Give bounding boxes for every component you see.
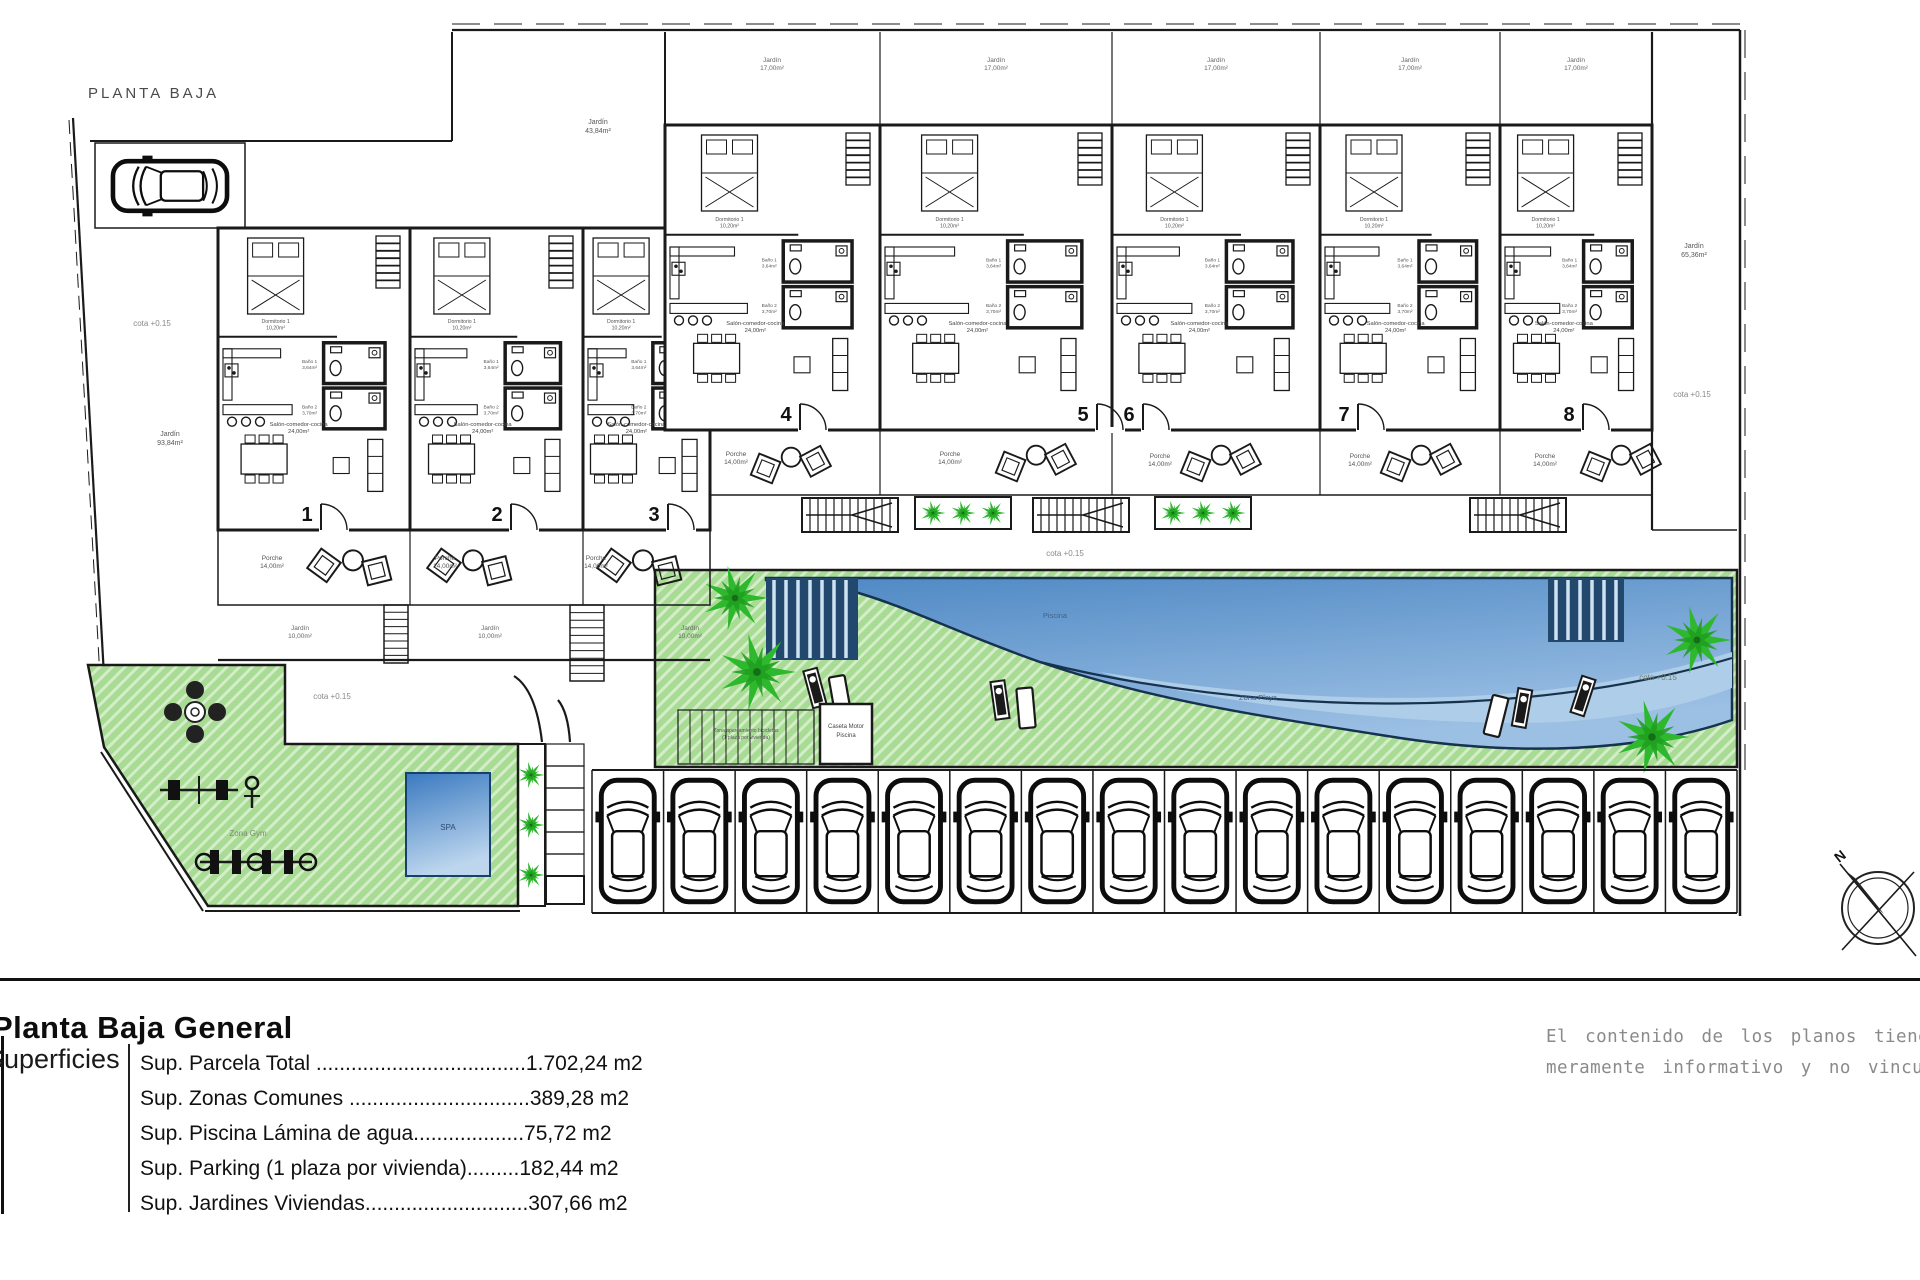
parked-car-icon — [1669, 780, 1734, 902]
plan-label: Salón-comedor-cocina — [607, 422, 666, 428]
plan-label: Zona Playa — [1239, 693, 1278, 702]
palm-glyph — [519, 812, 545, 838]
pset-glyph — [1178, 442, 1262, 484]
plan-label: Baño 1 — [986, 257, 1002, 263]
plan-label: Baño 1 — [762, 257, 778, 263]
apartment-unit: Baño 13,64m²Baño 23,70m²Dormitorio 110,2… — [880, 125, 1112, 430]
plan-label: Dormitorio 1 — [1160, 217, 1188, 223]
plan-label: 3,64m² — [484, 365, 499, 371]
plan-rect — [783, 287, 852, 328]
plan-title-label: PLANTA BAJA — [88, 85, 219, 102]
stairH-glyph — [802, 498, 898, 532]
parked-car-icon — [810, 780, 875, 902]
plan-label: 3,64m² — [762, 263, 777, 269]
plan-label: 14,00m² — [724, 459, 749, 466]
plan-label: 24,00m² — [626, 429, 647, 435]
plan-rect — [1008, 241, 1082, 282]
plan-label: 3,70m² — [986, 309, 1001, 315]
driveway-curb — [558, 700, 570, 742]
plan-label: Salón-comedor-cocina — [1170, 321, 1229, 327]
plan-label: 3,70m² — [1562, 309, 1577, 315]
unit-number: 8 — [1563, 404, 1574, 426]
plan-label: Baño 2 — [986, 303, 1002, 309]
pool-machinery-hut: Caseta MotorPiscina — [820, 704, 872, 764]
plan-label: Jardín — [1567, 57, 1585, 64]
parked-car-icon — [1597, 780, 1662, 902]
plnt-glyph — [1155, 497, 1251, 529]
plan-label: SPA — [440, 823, 456, 832]
plan-label: (1 plaza por vivienda) — [722, 735, 770, 741]
plan-rect — [1008, 287, 1082, 328]
plan-label: Porche — [940, 451, 961, 458]
plan-label: Jardín — [588, 119, 608, 126]
pset-glyph — [1378, 442, 1462, 484]
plan-label: Baño 2 — [1205, 303, 1221, 309]
parked-car-icon — [1168, 780, 1233, 902]
plan-label: 17,00m² — [760, 65, 785, 72]
parked-car-icon — [882, 780, 947, 902]
plan-label: Dormitorio 1 — [607, 319, 635, 325]
plan-label: 3,64m² — [631, 365, 646, 371]
door-opening — [1356, 427, 1386, 433]
plan-label: Salón-comedor-cocina — [726, 321, 785, 327]
titleblock-divider — [128, 1044, 130, 1212]
plan-rect — [766, 578, 858, 660]
pset-glyph — [1578, 442, 1662, 484]
unit-number: 5 — [1077, 404, 1088, 426]
porch-row — [710, 430, 1652, 495]
plan-label: 24,00m² — [1189, 328, 1210, 334]
unit-number: 7 — [1338, 404, 1349, 426]
plan-label: Jardín — [763, 57, 781, 64]
parked-car-icon — [1454, 780, 1519, 902]
plan-rect — [1226, 287, 1293, 328]
plan-label: 24,00m² — [745, 328, 766, 334]
plan-label: Zona aparcamiento bicicletas — [713, 728, 779, 734]
plan-label: 3,64m² — [1562, 263, 1577, 269]
plan-label: 10,20m² — [1364, 224, 1383, 230]
storage-cell — [546, 854, 584, 876]
storage-cell — [546, 744, 584, 766]
plan-label: 17,00m² — [1564, 65, 1589, 72]
plan-label: 93,84m² — [157, 440, 183, 447]
plan-label: Jardín — [681, 625, 699, 632]
unit-number: 6 — [1123, 404, 1134, 426]
plan-rect — [324, 343, 385, 384]
plan-label: Dormitorio 1 — [261, 319, 289, 325]
palm-glyph — [519, 862, 545, 888]
plan-label: 14,00m² — [433, 563, 458, 570]
lng-glyph — [1016, 687, 1035, 728]
surface-row: Sup. Parking (1 plaza por vivienda).....… — [140, 1151, 643, 1186]
plan-label: 24,00m² — [288, 429, 309, 435]
plan-label: Jardín — [1684, 243, 1704, 250]
plan-label: 14,00m² — [1148, 461, 1173, 468]
plan-label: Baño 2 — [1397, 303, 1413, 309]
plan-label: Jardín — [160, 431, 180, 438]
plan-label: Dormitorio 1 — [448, 319, 476, 325]
plan-label: Caseta Motor — [828, 724, 864, 730]
plan-label: 10,00m² — [288, 633, 313, 640]
plan-label: 14,00m² — [584, 563, 609, 570]
unit-number: 2 — [491, 504, 502, 526]
stairH-glyph — [1033, 498, 1129, 532]
parked-car-icon — [1526, 780, 1591, 902]
plan-label: Salón-comedor-cocina — [1367, 321, 1426, 327]
parking-row — [592, 770, 1737, 913]
plan-label: Baño 1 — [1205, 257, 1221, 263]
parked-car-icon — [1025, 780, 1090, 902]
plan-label: 24,00m² — [472, 429, 493, 435]
apartment-unit: Baño 13,64m²Baño 23,70m²Dormitorio 110,2… — [218, 228, 410, 530]
plan-rect — [783, 241, 852, 282]
plan-label: Porche — [1535, 453, 1556, 460]
plan-line — [69, 120, 104, 750]
parked-car-icon — [1240, 780, 1305, 902]
plan-label: Baño 1 — [631, 359, 647, 365]
plan-rect — [1226, 241, 1293, 282]
plan-label: Porche — [1150, 453, 1171, 460]
disclaimer-line: El contenido de los planos tiene valor — [1546, 1022, 1920, 1053]
parked-car-icon — [739, 780, 804, 902]
plan-label: 10,20m² — [266, 326, 285, 332]
driveway-curb — [514, 676, 542, 742]
surface-row: Sup. Parcela Total .....................… — [140, 1046, 643, 1081]
parked-car-icon — [113, 156, 227, 217]
plan-line — [73, 118, 108, 748]
pool-deck-steps — [766, 578, 858, 660]
pset-glyph — [748, 444, 832, 486]
plan-label: Salón-comedor-cocina — [270, 422, 329, 428]
plan-label: 24,00m² — [1553, 328, 1574, 334]
unit-number: 4 — [780, 404, 792, 426]
pset-glyph — [993, 442, 1077, 484]
plan-label: 14,00m² — [938, 459, 963, 466]
plan-label: Dormitorio 1 — [935, 217, 963, 223]
storage-cell — [546, 788, 584, 810]
plan-label: Baño 1 — [1397, 257, 1413, 263]
disclaimer-line: meramente informativo y no vinculante — [1546, 1053, 1920, 1084]
storage-cell — [546, 810, 584, 832]
plan-label: Baño 2 — [302, 404, 318, 410]
plan-label: Baño 2 — [762, 303, 778, 309]
door-opening — [509, 527, 539, 533]
legal-disclaimer: El contenido de los planos tiene valor m… — [1546, 1022, 1920, 1084]
surface-row: Sup. Jardines Viviendas.................… — [140, 1186, 643, 1221]
plan-label: Porche — [726, 451, 747, 458]
plan-label: Salón-comedor-cocina — [454, 422, 513, 428]
plan-label: cota +0.15 — [133, 319, 171, 328]
plan-label: Baño 2 — [484, 404, 500, 410]
plan-label: Jardín — [481, 625, 499, 632]
plan-label: 17,00m² — [1398, 65, 1423, 72]
apartment-unit: Baño 13,64m²Baño 23,70m²Dormitorio 110,2… — [1500, 125, 1652, 430]
parked-car-icon — [1383, 780, 1448, 902]
plan-label: Jardín — [1401, 57, 1419, 64]
stairs-icon — [384, 605, 408, 663]
door-opening — [1141, 427, 1171, 433]
page-title: Planta Baja General — [0, 1010, 293, 1046]
plan-label: Piscina — [836, 733, 856, 739]
plan-label: 10,20m² — [720, 224, 739, 230]
plnt-glyph — [915, 497, 1011, 529]
unit-number: 3 — [648, 504, 659, 526]
plan-label: 14,00m² — [1348, 461, 1373, 468]
plan-label: 3,64m² — [302, 365, 317, 371]
plan-label: 10,00m² — [478, 633, 503, 640]
plan-label: 17,00m² — [984, 65, 1009, 72]
surface-table: Sup. Parcela Total .....................… — [140, 1046, 643, 1221]
plan-label: 10,20m² — [612, 326, 631, 332]
unit-number: 1 — [301, 504, 312, 526]
plan-label: Salón-comedor-cocina — [1535, 321, 1594, 327]
plan-label: 3,70m² — [302, 410, 317, 416]
superficies-label: Superficies — [0, 1044, 120, 1075]
plan-label: cota +0.15 — [1639, 673, 1677, 682]
plan-label: Porche — [1350, 453, 1371, 460]
parked-car-icon — [1096, 780, 1161, 902]
door-opening — [1581, 427, 1611, 433]
plan-label: Jardín — [1207, 57, 1225, 64]
plan-label: 14,00m² — [260, 563, 285, 570]
plan-label: Baño 1 — [484, 359, 500, 365]
plan-label: 65,36m² — [1681, 252, 1707, 259]
plan-label: Dormitorio 1 — [1531, 217, 1559, 223]
plan-label: Baño 2 — [1562, 303, 1578, 309]
plan-label: 3,64m² — [1398, 263, 1413, 269]
apartment-unit: Baño 13,64m²Baño 23,70m²Dormitorio 110,2… — [410, 228, 583, 530]
storage-box — [546, 876, 584, 904]
door-opening — [319, 527, 349, 533]
plan-label: 24,00m² — [967, 328, 988, 334]
apartment-unit: Baño 13,64m²Baño 23,70m²Dormitorio 110,2… — [1320, 125, 1500, 430]
plan-label: 10,20m² — [452, 326, 471, 332]
door-opening — [1095, 427, 1125, 433]
plan-label: 24,00m² — [1385, 328, 1406, 334]
plan-label: cota +0.15 — [1046, 549, 1084, 558]
titleblock-rule — [0, 978, 1920, 981]
plan-label: 10,20m² — [1536, 224, 1555, 230]
plan-label: 3,70m² — [1398, 309, 1413, 315]
parked-car-icon — [953, 780, 1018, 902]
plan-label: Porche — [586, 555, 607, 562]
plan-label: Jardín — [987, 57, 1005, 64]
plan-label: Jardín — [291, 625, 309, 632]
plan-label: Dormitorio 1 — [715, 217, 743, 223]
plan-label: 3,70m² — [762, 309, 777, 315]
plan-label: 10,20m² — [1165, 224, 1184, 230]
plan-label: 3,70m² — [484, 410, 499, 416]
plan-label: 3,70m² — [1205, 309, 1220, 315]
plan-label: Dormitorio 1 — [1360, 217, 1388, 223]
plan-label: Baño 1 — [1562, 257, 1578, 263]
plan-label: 10,20m² — [940, 224, 959, 230]
parked-car-icon — [1311, 780, 1376, 902]
storage-cell — [546, 766, 584, 788]
plan-label: Porche — [262, 555, 283, 562]
door-opening — [798, 427, 828, 433]
plan-label: cota +0.15 — [313, 692, 351, 701]
surface-row: Sup. Zonas Comunes .....................… — [140, 1081, 643, 1116]
plan-label: cota +0.15 — [1673, 390, 1711, 399]
plan-label: 10,00m² — [678, 633, 703, 640]
plan-rect — [1548, 578, 1624, 642]
stairH-glyph — [1470, 498, 1566, 532]
north-label: N — [1831, 847, 1849, 866]
apartment-unit: Baño 13,64m²Baño 23,70m²Dormitorio 110,2… — [665, 125, 880, 430]
plan-rect — [324, 388, 385, 429]
floor-plan-canvas: PLANTA BAJAJardín43,84m²cota +0.15Jardín… — [0, 0, 1920, 1280]
parked-car-icon — [595, 780, 660, 902]
plan-label: 3,64m² — [986, 263, 1001, 269]
plan-label: 3,64m² — [1205, 263, 1220, 269]
plan-label: Salón-comedor-cocina — [948, 321, 1007, 327]
palm-glyph — [519, 762, 545, 788]
plan-label: Zona Gym — [229, 829, 267, 838]
plan-label: 14,00m² — [1533, 461, 1558, 468]
apartment-unit: Baño 13,64m²Baño 23,70m²Dormitorio 110,2… — [1112, 125, 1320, 430]
pool-deck-steps — [1548, 578, 1624, 642]
plan-label: 43,84m² — [585, 128, 611, 135]
stairs-icon — [570, 605, 604, 681]
plan-label: Piscina — [1043, 611, 1068, 620]
plan-label: Porche — [435, 555, 456, 562]
compass-rose: N — [1831, 847, 1916, 956]
pset-glyph — [306, 544, 395, 591]
surface-row: Sup. Piscina Lámina de agua.............… — [140, 1116, 643, 1151]
door-opening — [666, 527, 696, 533]
storage-cell — [546, 832, 584, 854]
plan-label: Baño 1 — [302, 359, 318, 365]
plan-label: 17,00m² — [1204, 65, 1229, 72]
parked-car-icon — [667, 780, 732, 902]
